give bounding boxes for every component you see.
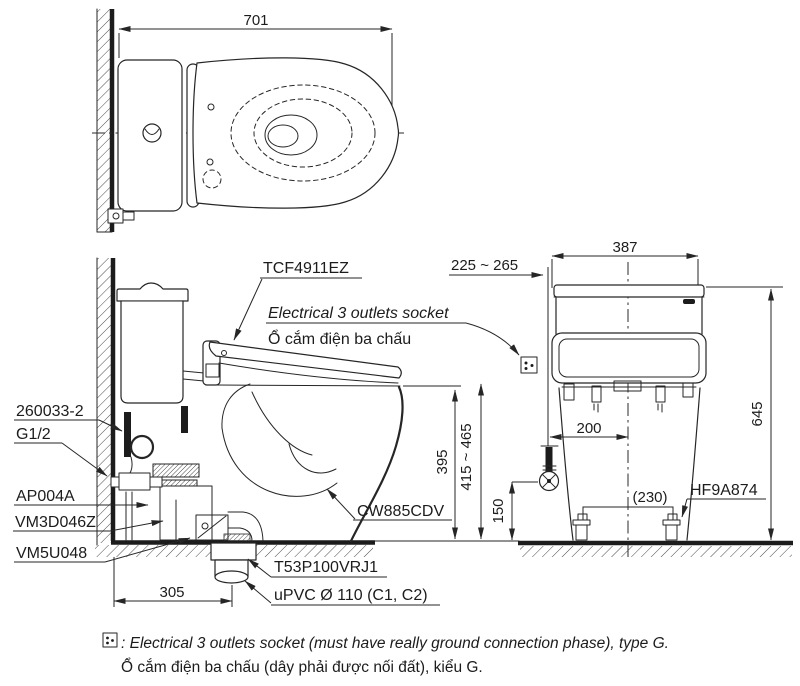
hose-loop — [131, 436, 153, 458]
label-socket-en: Electrical 3 outlets socket — [268, 305, 449, 322]
foot-bolt-left — [573, 514, 590, 540]
front-view: 387 225 ~ 265 — [449, 239, 793, 559]
label-tcf4911ez: TCF4911EZ — [263, 260, 349, 277]
nozzle-right — [656, 386, 665, 402]
bowl-inner-curve — [222, 428, 337, 496]
dim-rim-height-value: 395 — [434, 449, 451, 474]
dim-seat-height-value: 415 ~ 465 — [458, 423, 475, 490]
label-upvc: uPVC Ø 110 (C1, C2) — [274, 587, 428, 604]
brand-logo — [683, 299, 695, 304]
tank-side — [117, 283, 188, 403]
floor-hatch — [520, 546, 792, 557]
dim-drain-offset: 305 — [114, 557, 232, 607]
label-vm3d046z: VM3D046Z — [15, 514, 96, 531]
bowl-plan-outline — [193, 58, 399, 208]
supply-hose — [124, 412, 131, 457]
footnote-line2: Ổ cắm điện ba chấu (dây phải được nối đấ… — [121, 658, 483, 676]
footnote-line1: : Electrical 3 outlets socket (must have… — [121, 635, 669, 652]
toilet-installation-drawing: 701 — [0, 0, 800, 686]
callout-t53p100vrj1: T53P100VRJ1 — [248, 559, 387, 577]
dim-total-height-value: 645 — [749, 401, 766, 426]
callout-tcf4911ez: TCF4911EZ — [234, 260, 362, 340]
dim-supply-range-value: 225 ~ 265 — [451, 257, 518, 274]
foot-bolt-right — [663, 514, 680, 540]
label-t53p100vrj1: T53P100VRJ1 — [274, 559, 378, 576]
dim-seat-height: 415 ~ 465 — [458, 384, 481, 539]
dim-supply-offset-value: 200 — [576, 420, 601, 437]
socket-symbol — [521, 357, 537, 373]
nozzle-left — [592, 386, 601, 402]
dim-tank-width: 387 — [552, 239, 698, 288]
callout-g12: G1/2 — [14, 426, 107, 476]
callout-cw885cdv: CW885CDV — [327, 489, 452, 520]
pedestal-right-edge — [687, 388, 700, 540]
footnote: : Electrical 3 outlets socket (must have… — [103, 633, 669, 676]
dim-supply-height-value: 150 — [490, 498, 507, 523]
callout-socket: Electrical 3 outlets socket Ổ cắm điện b… — [266, 305, 519, 355]
label-g12: G1/2 — [16, 426, 51, 443]
tank-plan — [118, 60, 182, 211]
callout-vm3d046z: VM3D046Z — [13, 514, 163, 531]
top-view: 701 — [92, 9, 404, 232]
stop-valve-symbol — [540, 446, 559, 491]
pedestal-left-edge — [559, 388, 573, 540]
flush-outlet — [181, 406, 188, 433]
dim-supply-height: 150 — [490, 482, 538, 540]
dim-drain-offset-value: 305 — [159, 584, 184, 601]
tank-front — [554, 285, 704, 334]
label-socket-vi: Ổ cắm điện ba chấu — [268, 329, 411, 348]
callout-hf9a874: HF9A874 — [682, 482, 766, 517]
callout-ap004a: AP004A — [14, 488, 148, 505]
callout-upvc: uPVC Ø 110 (C1, C2) — [245, 581, 440, 605]
washlet-front — [552, 333, 706, 412]
wall-hatch — [97, 258, 111, 543]
label-ap004a: AP004A — [16, 488, 75, 505]
label-vm5u048: VM5U048 — [16, 545, 87, 562]
label-260033-2: 260033-2 — [16, 403, 84, 420]
dim-bolt-spacing-value: (230) — [632, 489, 667, 506]
label-cw885cdv: CW885CDV — [357, 503, 444, 520]
dim-tank-width-value: 387 — [612, 239, 637, 256]
label-hf9a874: HF9A874 — [690, 482, 758, 499]
dim-supply-range: 225 ~ 265 — [449, 257, 548, 446]
dim-top-width-value: 701 — [243, 12, 268, 29]
socket-symbol — [103, 633, 117, 647]
dim-total-height: 645 — [706, 287, 783, 540]
drain-pipe — [211, 543, 256, 583]
technical-drawing-sheet: 701 — [0, 0, 800, 686]
